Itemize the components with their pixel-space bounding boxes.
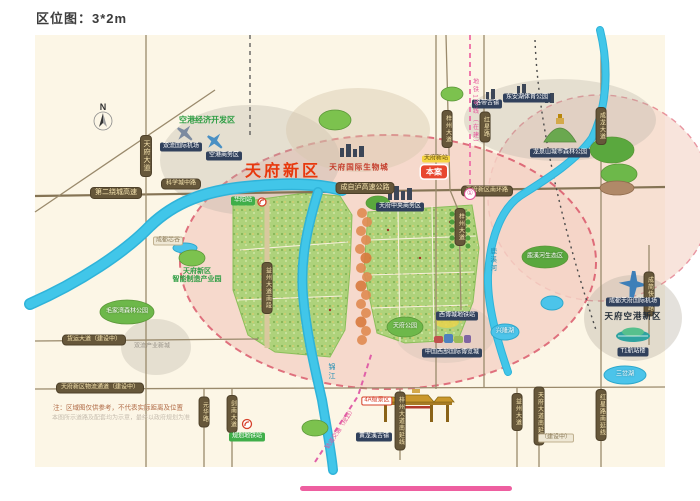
road-band-second-ring-expressway: 第二绕城高速 (90, 187, 142, 199)
badge-western-expo-city: 中国西部国际博览城 (422, 349, 482, 358)
road-band-yizhou-south: 益州大道南段 (262, 262, 273, 314)
badge-terminal-t1: T1航站楼 (617, 348, 648, 357)
badge-expo-metro-station: 西博城地铁站 (436, 312, 478, 321)
road-band-hongxing-south-ext: 红星路南延线 (596, 389, 607, 441)
metro-line1-station-dot: ① (464, 188, 476, 200)
badge-huayang-station: 华阳站 (231, 197, 255, 206)
road-band-logistics-channel: 天府新区物流通道（建设中） (56, 383, 144, 394)
label-maojiawan-forest-park: 毛家湾森林公园 (106, 309, 148, 316)
badge-under-construction: （建设中） (538, 434, 574, 443)
road-band-yuanhua-road: 元华路 (199, 397, 210, 428)
map-labels-layer: 第二绕城高速科学城中路成自泸高速公路天府新区南环路货运大道（建设中）天府新区物流… (0, 0, 700, 501)
road-band-zizhou-avenue-n: 梓州大道 (442, 110, 453, 148)
road-band-jiannan-avenue: 剑南大道 (227, 395, 238, 433)
badge-donganhu-park: 东安湖体育公园 (503, 94, 551, 103)
label-tianfu-airport-new-area: 天府空港新区 (604, 312, 661, 322)
road-band-freight-avenue: 货运大道（建设中） (62, 335, 126, 346)
label-metro-line1: 地铁1号线（在建） (471, 78, 478, 147)
road-band-zizhou-south-ext: 梓州大道南延线 (395, 392, 406, 451)
badge-chengdu-chip-valley: 成都芯谷 (153, 237, 183, 246)
label-industry-town: 双流产业新城 (134, 344, 170, 351)
badge-tianfu-intl-airport: 成都天府国际机场 (606, 298, 660, 307)
label-airport-economic-zone: 空港经济开发区 (179, 115, 235, 124)
badge-huanglongxi-town: 黄龙溪古镇 (356, 433, 392, 442)
badge-tianfu-new-station: 天府新站 (422, 156, 450, 163)
road-band-zizhou-avenue: 梓州大道 (455, 208, 466, 246)
badge-planned-metro-station: 规划地铁站 (229, 433, 265, 442)
road-band-tianfu-avenue: 天府大道 (140, 135, 152, 177)
label-planned-rail: 轨道交通（规划） (325, 407, 357, 451)
label-tianfu-park: 天府公园 (393, 324, 417, 331)
label-tianfu-bio-city: 天府国际生物城 (329, 164, 389, 173)
label-sancha-lake: 三岔湖 (616, 372, 634, 379)
road-band-science-city-road: 科学城中路 (161, 179, 201, 190)
badge-longquanshan-park: 龙泉山城市森林公园 (530, 149, 590, 158)
location-map-page: 区位图：3*2m (0, 0, 700, 501)
label-xinglong-lake: 兴隆湖 (496, 329, 514, 336)
compass-n-label: N (100, 102, 107, 112)
map-disclaimer: 注：区域图仅供参考，不代表实际距离及位置 (53, 404, 183, 411)
map-canvas: 第二绕城高速科学城中路成自泸高速公路天府新区南环路货运大道（建设中）天府新区物流… (0, 0, 700, 501)
label-luxi-river: 鹿溪河 (488, 247, 495, 273)
label-intelligent-manufacturing-park: 天府新区 智能制造产业园 (173, 268, 222, 284)
label-luxi-river-eco-zone: 鹿溪河生态区 (527, 254, 563, 261)
map-disclaimer-fine: 本图所示道路及配套均为示意，最终以政府规划为准 (52, 416, 190, 423)
badge-tianfu-cbd: 天府中央商务区 (376, 203, 424, 212)
road-band-chengzilu-expressway: 成自泸高速公路 (336, 182, 395, 194)
road-band-chenglong-avenue: 成龙大道 (596, 107, 607, 145)
badge-4a-scenic: 4A级景区 (361, 397, 392, 406)
badge-shuangliu-airport: 双流国际机场 (160, 143, 202, 152)
road-band-hongxing-road: 红星路 (480, 112, 491, 143)
project-marker: 本案 (421, 165, 447, 178)
road-band-chengjian-expressway: 成简快速路 (644, 272, 655, 317)
road-band-yizhou-avenue: 益州大道 (512, 393, 523, 431)
label-jinjiang-river: 锦江 (327, 363, 335, 381)
badge-airport-business-zone: 空港商务区 (206, 152, 242, 161)
district-label-tianfu-new-area: 天府新区 (245, 163, 321, 181)
